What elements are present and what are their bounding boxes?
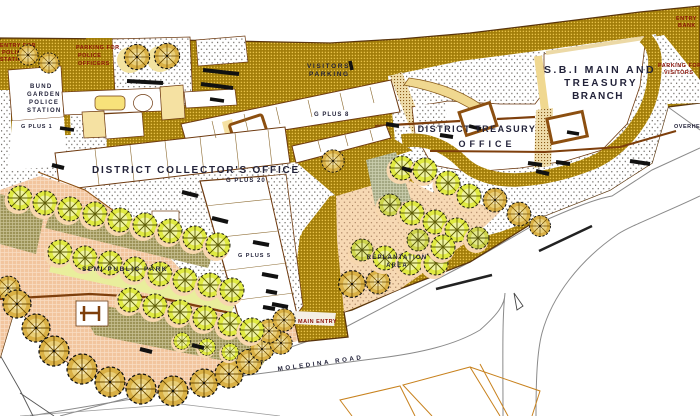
svg-text:G PLUS 1: G PLUS 1 (21, 124, 52, 130)
svg-text:VISITORS: VISITORS (307, 63, 350, 70)
svg-text:BUND: BUND (30, 84, 53, 90)
svg-text:PARKING: PARKING (309, 71, 350, 78)
svg-text:DISTRICT COLLECTOR'S OFFICE: DISTRICT COLLECTOR'S OFFICE (92, 165, 300, 176)
svg-text:AREA: AREA (386, 263, 408, 269)
svg-text:G PLUS 5: G PLUS 5 (238, 253, 271, 259)
svg-text:MAIN ENTRY: MAIN ENTRY (298, 319, 337, 325)
svg-text:G PLUS 8: G PLUS 8 (314, 112, 349, 118)
svg-text:ENTRY: ENTRY (676, 16, 697, 22)
svg-text:BANK: BANK (678, 23, 696, 29)
svg-text:POLICE: POLICE (78, 53, 101, 59)
svg-text:OFFICERS: OFFICERS (78, 61, 110, 67)
svg-text:POLICE: POLICE (29, 100, 59, 106)
svg-text:REPLANTATION: REPLANTATION (367, 255, 428, 261)
svg-text:SEMI-PUBLIC PARK: SEMI-PUBLIC PARK (82, 266, 168, 273)
svg-text:DISTRICT TREASURY: DISTRICT TREASURY (418, 124, 537, 134)
svg-text:GARDEN: GARDEN (27, 92, 61, 98)
svg-text:BRANCH: BRANCH (572, 91, 624, 102)
svg-text:OFFICE: OFFICE (459, 139, 516, 149)
svg-text:VISITORS: VISITORS (664, 70, 694, 76)
svg-text:OVERHEAD: OVERHEAD (674, 124, 700, 130)
svg-text:PARKING FOR: PARKING FOR (76, 45, 120, 51)
svg-text:G PLUS 20: G PLUS 20 (226, 178, 266, 184)
svg-text:S.B.I MAIN AND: S.B.I MAIN AND (544, 64, 656, 76)
svg-text:PARKING FOR: PARKING FOR (658, 63, 700, 69)
svg-text:TREASURY: TREASURY (564, 78, 638, 89)
svg-text:STATION: STATION (27, 108, 62, 114)
